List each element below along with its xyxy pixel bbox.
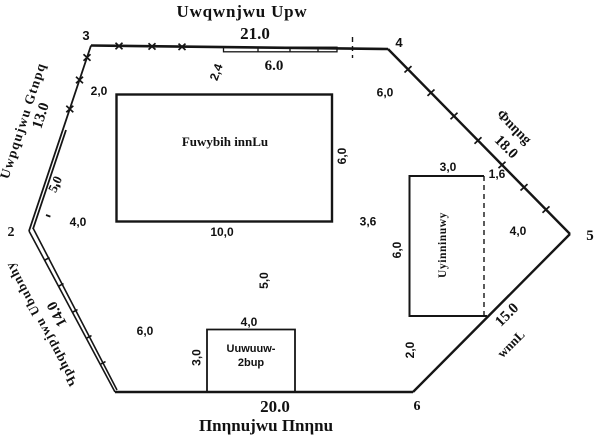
svg-text:6,0: 6,0 [390,241,404,258]
svg-text:4,0: 4,0 [70,215,87,229]
svg-text:Uuwuuw-: Uuwuuw- [227,343,276,355]
svg-text:Fuwybih innLu: Fuwybih innLu [182,134,268,149]
svg-text:10,0: 10,0 [210,225,234,239]
svg-text:20.0: 20.0 [260,397,290,416]
svg-text:4,0: 4,0 [241,315,258,329]
svg-text:2: 2 [8,225,15,240]
svg-text:5: 5 [586,228,594,244]
svg-text:Uyinninuwy: Uyinninuwy [437,212,449,278]
svg-text:1,6: 1,6 [489,167,506,181]
svg-text:6.0: 6.0 [265,58,284,74]
svg-text:wnnL: wnnL [494,327,528,361]
svg-text:6,0: 6,0 [137,324,154,338]
svg-text:5,0: 5,0 [257,272,271,289]
svg-text:2,0: 2,0 [91,84,108,98]
svg-text:6: 6 [414,399,421,414]
svg-text:15.0: 15.0 [492,300,522,330]
svg-text:21.0: 21.0 [240,24,270,43]
svg-text:4,0: 4,0 [510,224,527,238]
svg-text:6,0: 6,0 [377,86,394,100]
svg-text:3: 3 [82,28,89,43]
svg-text:Пnηnujwu Пnηnu: Пnηnujwu Пnηnu [199,416,333,435]
svg-text:6,0: 6,0 [335,147,349,164]
svg-text:3,6: 3,6 [360,215,377,229]
svg-text:3,0: 3,0 [190,349,204,366]
svg-text:4: 4 [395,35,403,50]
svg-text:2,0: 2,0 [403,341,417,358]
svg-text:3,0: 3,0 [440,160,457,174]
svg-text:Uwqwnjwu Upw: Uwqwnjwu Upw [177,2,308,21]
svg-text:Чphqnpjwu Ububnhy: Чphqnpjwu Ububnhy [2,259,80,389]
svg-text:2bup: 2bup [238,357,265,369]
svg-text:2,4: 2,4 [207,62,226,83]
